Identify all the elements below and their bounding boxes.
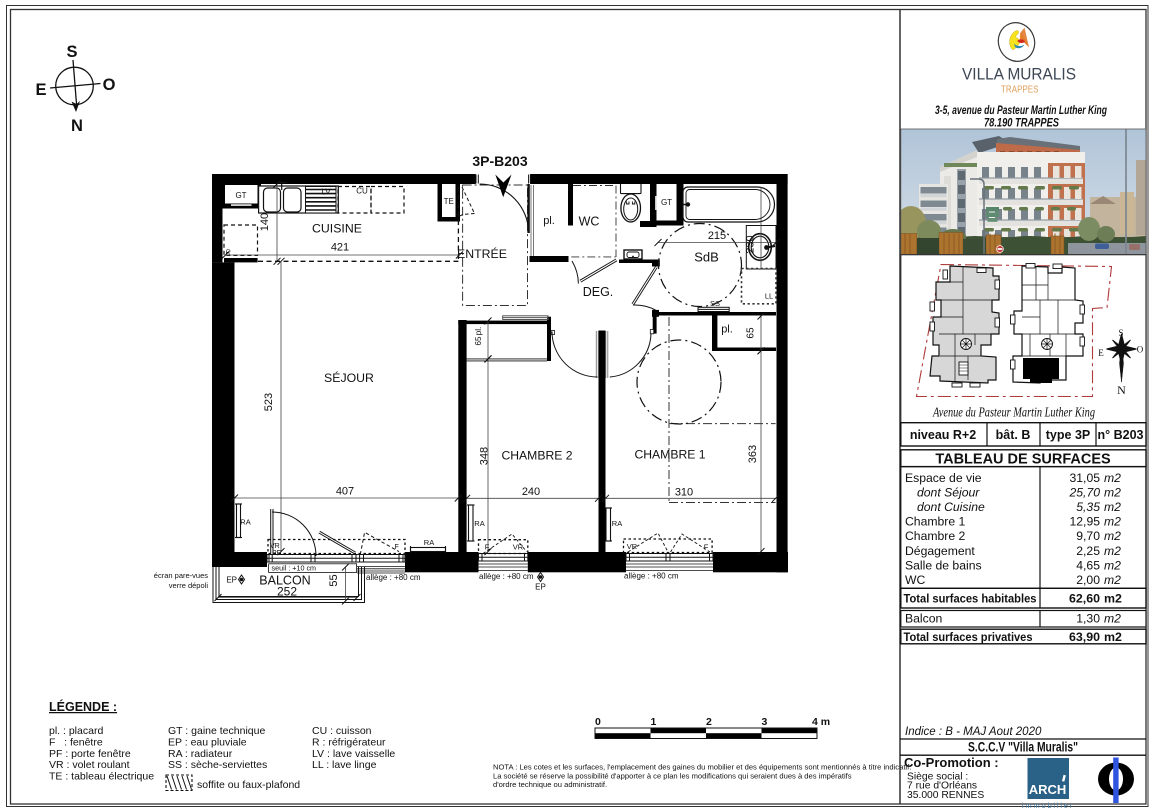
svg-text:E: E — [1098, 348, 1104, 358]
svg-text:3P-B203: 3P-B203 — [472, 153, 527, 169]
svg-text:215: 215 — [708, 230, 726, 242]
svg-text:EP : eau pluviale: EP : eau pluviale — [168, 736, 247, 748]
svg-text:RA: RA — [424, 538, 434, 547]
svg-text:2: 2 — [706, 716, 712, 728]
svg-text:VR: VR — [513, 543, 524, 552]
svg-text:m2: m2 — [1104, 573, 1121, 587]
svg-text:348: 348 — [479, 447, 491, 465]
svg-text:65: 65 — [474, 336, 483, 345]
svg-text:PF: PF — [272, 550, 281, 557]
svg-text:CHAMBRE 2: CHAMBRE 2 — [501, 449, 572, 463]
svg-text:S: S — [1118, 328, 1123, 338]
svg-text:Balcon: Balcon — [905, 611, 942, 625]
svg-text:Total surfaces habitables: Total surfaces habitables — [904, 592, 1037, 606]
svg-text:TABLEAU DE SURFACES: TABLEAU DE SURFACES — [935, 452, 1111, 468]
svg-text:SS: SS — [710, 299, 720, 308]
svg-text:pl.: pl. — [721, 324, 733, 336]
svg-text:NOTA : Les cotes et les surfac: NOTA : Les cotes et les surfaces, l'empl… — [493, 763, 911, 772]
svg-text:SdB: SdB — [694, 250, 719, 265]
svg-text:407: 407 — [336, 486, 354, 498]
svg-text:écran pare-vues: écran pare-vues — [154, 571, 208, 580]
svg-text:F: F — [704, 543, 709, 552]
svg-text:140: 140 — [259, 213, 271, 231]
svg-text:soffite ou faux-plafond: soffite ou faux-plafond — [197, 779, 300, 791]
svg-text:allège : +80 cm: allège : +80 cm — [479, 572, 534, 581]
svg-text:TE : tableau électrique: TE : tableau électrique — [49, 771, 154, 783]
svg-text:m2: m2 — [1104, 471, 1121, 485]
svg-text:m2: m2 — [1104, 529, 1121, 543]
svg-text:m2: m2 — [1104, 592, 1122, 606]
svg-text:O: O — [103, 76, 116, 94]
svg-text:12,95: 12,95 — [1070, 515, 1101, 529]
svg-text:RA : radiateur: RA : radiateur — [168, 748, 233, 760]
svg-text:LV: LV — [321, 188, 331, 197]
svg-text:LÉGENDE :: LÉGENDE : — [49, 699, 117, 714]
svg-text:35.000 RENNES: 35.000 RENNES — [907, 790, 984, 801]
svg-text:SS : sèche-serviettes: SS : sèche-serviettes — [168, 759, 267, 771]
svg-text:Chambre 1: Chambre 1 — [905, 515, 966, 529]
svg-text:CU: CU — [356, 187, 368, 196]
svg-text:dont Séjour: dont Séjour — [917, 486, 980, 500]
svg-text:310: 310 — [675, 486, 693, 498]
svg-text:pl.: pl. — [474, 327, 483, 335]
svg-text:25,70: 25,70 — [1069, 486, 1101, 500]
svg-text:4 m: 4 m — [812, 716, 830, 728]
svg-text:Chambre 2: Chambre 2 — [905, 529, 966, 543]
svg-text:4,65: 4,65 — [1076, 558, 1100, 572]
svg-text:S: S — [66, 43, 77, 61]
svg-text:WC: WC — [579, 215, 600, 229]
svg-text:allège : +80 cm: allège : +80 cm — [366, 573, 421, 582]
svg-text:WC: WC — [905, 573, 926, 587]
svg-text:3-5, avenue du Pasteur Martin: 3-5, avenue du Pasteur Martin Luther Kin… — [935, 105, 1107, 117]
svg-text:VR : volet roulant: VR : volet roulant — [49, 759, 130, 771]
svg-text:seuil : +10 cm: seuil : +10 cm — [272, 564, 317, 573]
svg-text:bât. B: bât. B — [996, 428, 1031, 442]
svg-text:VR: VR — [270, 543, 280, 550]
svg-text:TRAPPES: TRAPPES — [1001, 85, 1039, 96]
svg-text:PF : porte fenêtre: PF : porte fenêtre — [49, 748, 131, 760]
svg-text:230: 230 — [745, 235, 757, 253]
svg-text:63,90: 63,90 — [1069, 630, 1100, 644]
svg-text:EP: EP — [226, 576, 237, 585]
svg-text:dont Cuisine: dont Cuisine — [917, 500, 985, 514]
svg-text:LL : lave linge: LL : lave linge — [312, 759, 377, 771]
svg-text:VILLA MURALIS: VILLA MURALIS — [962, 66, 1076, 84]
svg-text:1,30: 1,30 — [1076, 611, 1100, 625]
svg-text:Avenue du Pasteur Martin Luthe: Avenue du Pasteur Martin Luther King — [932, 406, 1095, 421]
svg-text:N: N — [71, 117, 83, 135]
svg-text:Total surfaces privatives: Total surfaces privatives — [904, 630, 1033, 644]
svg-text:LV : lave vaisselle: LV : lave vaisselle — [312, 748, 395, 760]
svg-text:421: 421 — [331, 242, 349, 254]
svg-text:363: 363 — [747, 445, 759, 463]
svg-text:CU : cuisson: CU : cuisson — [312, 725, 372, 737]
svg-text:0: 0 — [595, 716, 601, 728]
svg-text:ENTRÉE: ENTRÉE — [457, 246, 507, 261]
svg-text:78.190 TRAPPES: 78.190 TRAPPES — [984, 118, 1059, 130]
svg-text:Co-Promotion :: Co-Promotion : — [904, 755, 999, 770]
svg-text:ARCH: ARCH — [1029, 782, 1067, 797]
svg-text:m2: m2 — [1104, 630, 1122, 644]
svg-text:S.C.C.V "Villa Muralis": S.C.C.V "Villa Muralis" — [968, 740, 1078, 755]
svg-text:Dégagement: Dégagement — [905, 544, 975, 558]
svg-text:Indice : B - MAJ Aout 2020: Indice : B - MAJ Aout 2020 — [905, 726, 1042, 738]
svg-text:n° B203: n° B203 — [1098, 428, 1144, 442]
svg-text:RA: RA — [474, 519, 484, 528]
svg-text:d'ordre technique ou administr: d'ordre technique ou administratif. — [493, 780, 607, 789]
svg-text:F : fenêtre: F : fenêtre — [49, 736, 103, 748]
svg-text:pl.: pl. — [543, 215, 555, 227]
svg-text:O: O — [1137, 345, 1144, 355]
svg-text:252: 252 — [277, 585, 297, 599]
svg-text:TE: TE — [444, 197, 454, 206]
svg-text:55: 55 — [328, 574, 340, 586]
svg-text:CHAMBRE 1: CHAMBRE 1 — [634, 448, 705, 462]
svg-text:GT : gaine technique: GT : gaine technique — [168, 725, 265, 737]
svg-text:LL: LL — [765, 292, 773, 301]
svg-text:DEG.: DEG. — [583, 285, 614, 299]
svg-text:allège : +80 cm: allège : +80 cm — [624, 572, 679, 581]
svg-text:VR: VR — [627, 542, 638, 551]
svg-text:SÉJOUR: SÉJOUR — [324, 370, 374, 385]
svg-text:3: 3 — [762, 716, 768, 728]
svg-text:GT: GT — [235, 191, 246, 200]
svg-text:m2: m2 — [1104, 544, 1121, 558]
svg-text:62,60: 62,60 — [1069, 592, 1100, 606]
svg-text:5,35: 5,35 — [1076, 500, 1100, 514]
svg-text:GT: GT — [661, 198, 672, 207]
svg-text:RA: RA — [612, 519, 622, 528]
svg-text:m2: m2 — [1104, 611, 1121, 625]
svg-text:verre dépoli: verre dépoli — [169, 581, 209, 590]
svg-text:Espace de vie: Espace de vie — [905, 471, 982, 485]
svg-text:m2: m2 — [1104, 558, 1121, 572]
svg-text:240: 240 — [522, 486, 540, 498]
svg-text:m2: m2 — [1104, 515, 1121, 529]
svg-text:R : réfrigérateur: R : réfrigérateur — [312, 736, 386, 748]
svg-text:523: 523 — [263, 393, 275, 411]
svg-text:E: E — [35, 81, 46, 99]
svg-text:Salle de bains: Salle de bains — [905, 558, 982, 572]
svg-text:m2: m2 — [1104, 486, 1121, 500]
svg-text:pl. : placard: pl. : placard — [49, 725, 103, 737]
svg-text:F: F — [395, 544, 399, 551]
svg-text:1: 1 — [651, 716, 657, 728]
svg-text:2,00: 2,00 — [1076, 573, 1100, 587]
svg-text:CUISINE: CUISINE — [312, 222, 362, 236]
svg-text:2,25: 2,25 — [1076, 544, 1100, 558]
svg-text:type 3P: type 3P — [1046, 428, 1090, 442]
svg-text:31,05: 31,05 — [1070, 471, 1101, 485]
svg-text:m2: m2 — [1104, 500, 1121, 514]
svg-text:9,70: 9,70 — [1076, 529, 1100, 543]
svg-text:65: 65 — [746, 327, 757, 339]
svg-text:N: N — [1117, 383, 1126, 397]
svg-text:immobilier: immobilier — [1022, 801, 1074, 810]
svg-text:RA: RA — [240, 518, 250, 527]
svg-text:niveau R+2: niveau R+2 — [910, 428, 976, 442]
svg-text:EP: EP — [535, 583, 546, 592]
